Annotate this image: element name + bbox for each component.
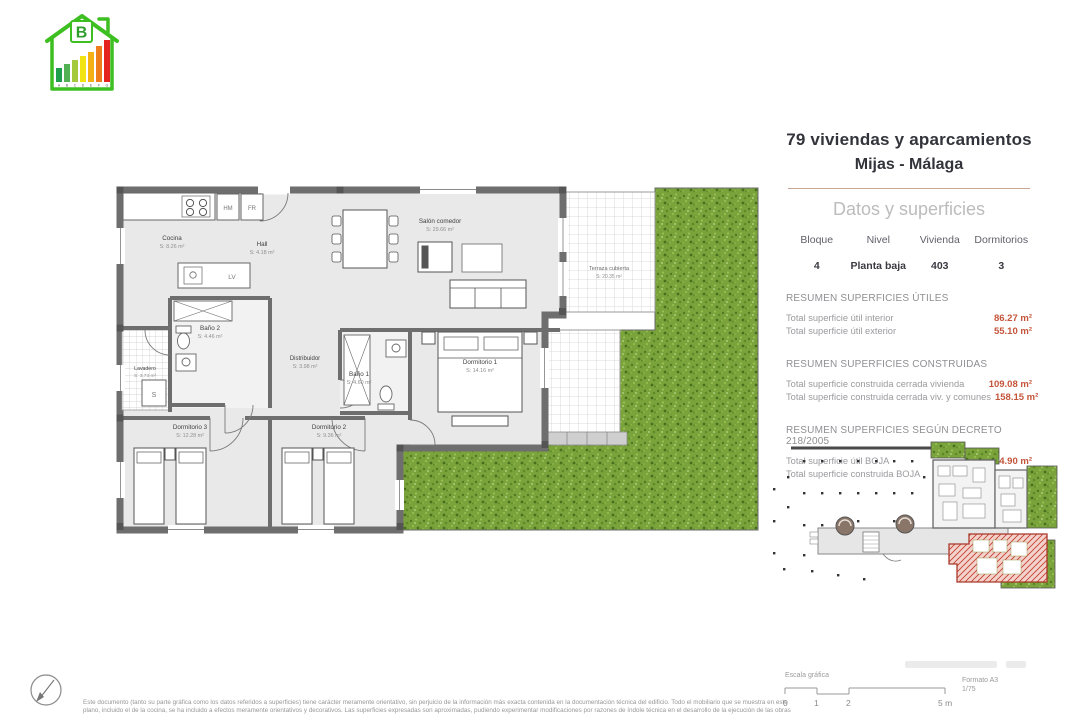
room-label-bano1: Baño 1 xyxy=(349,371,369,378)
bed-double xyxy=(422,332,537,426)
north-arrow-icon xyxy=(24,668,68,712)
energy-scale-letters: A B C D E F G xyxy=(58,84,109,88)
section-title: RESUMEN SUPERFICIES ÚTILES xyxy=(786,293,1032,304)
energy-bars xyxy=(56,40,110,82)
panel-divider xyxy=(788,188,1030,189)
surface-value: 55.10 m² xyxy=(994,325,1032,338)
col-header-dormitorios: Dormitorios xyxy=(971,234,1033,246)
room-area-lavadero: S: 3.73 m² xyxy=(134,373,157,379)
col-header-bloque: Bloque xyxy=(786,234,848,246)
energy-rating-letter: B xyxy=(76,25,88,42)
room-area-bano1: S: 4.60 m² xyxy=(347,380,372,386)
room-area-hall: S: 4.18 m² xyxy=(250,250,275,256)
room-area-bano2: S: 4.46 m² xyxy=(198,334,223,340)
tv-unit xyxy=(418,242,452,272)
surface-label: Total superficie útil interior xyxy=(786,312,893,325)
disclaimer-text: Este documento (tanto su parte gráfica c… xyxy=(83,699,1058,715)
surface-row: Total superficie construida cerrada viv.… xyxy=(786,391,1032,404)
room-label-hall: Hall xyxy=(257,241,268,248)
room-label-distribuidor: Distribuidor xyxy=(290,356,320,362)
col-value-bloque: 4 xyxy=(786,260,848,272)
room-area-dorm1: S: 14.16 m² xyxy=(466,368,494,374)
room-label-cocina: Cocina xyxy=(162,235,182,242)
section-title: RESUMEN SUPERFICIES CONSTRUIDAS xyxy=(786,359,1032,370)
room-label-lavadero: Lavadero xyxy=(134,366,156,372)
watermark-logo-small xyxy=(1006,661,1026,668)
surface-label: Total superficie construida cerrada viv.… xyxy=(786,391,991,404)
svg-text:B: B xyxy=(66,84,69,88)
section-superficies-construidas: RESUMEN SUPERFICIES CONSTRUIDAS Total su… xyxy=(786,359,1032,404)
surface-label: Total superficie construida cerrada vivi… xyxy=(786,378,964,391)
disclaimer-line-2: plano, incluido el de la cocina, se ha i… xyxy=(83,707,1058,715)
apartment-floor-plan: HM FR LV xyxy=(110,180,770,540)
terrace-steps xyxy=(547,432,627,445)
room-area-distribuidor: S: 3.98 m² xyxy=(293,364,318,370)
room-area-terraza: S: 20.35 m² xyxy=(596,274,622,280)
svg-text:D: D xyxy=(82,84,85,88)
unit-info-table: Bloque 4 Nivel Planta baja Vivienda 403 … xyxy=(786,234,1032,272)
room-area-dorm3: S: 12.28 m² xyxy=(176,433,204,439)
surface-label: Total superficie útil exterior xyxy=(786,325,896,338)
watermark-logo xyxy=(905,661,997,668)
terrace-covered xyxy=(563,192,655,312)
surface-row: Total superficie útil exterior 55.10 m² xyxy=(786,325,1032,338)
dryer-label: S xyxy=(152,392,157,399)
col-value-nivel: Planta baja xyxy=(848,260,910,272)
format-scale: 1/75 xyxy=(962,685,998,694)
info-panel: 79 viviendas y aparcamientos Mijas - Mál… xyxy=(786,130,1032,481)
laundry-appliance: S xyxy=(142,380,166,406)
room-area-cocina: S: 8.26 m² xyxy=(160,244,185,250)
svg-text:C: C xyxy=(74,84,77,88)
svg-text:A: A xyxy=(58,84,61,88)
room-label-dorm1: Dormitorio 1 xyxy=(463,359,498,366)
section-superficies-utiles: RESUMEN SUPERFICIES ÚTILES Total superfi… xyxy=(786,293,1032,338)
svg-text:E: E xyxy=(90,84,93,88)
room-label-dorm3: Dormitorio 3 xyxy=(173,424,208,431)
panel-subtitle: Datos y superficies xyxy=(786,199,1032,220)
room-label-dorm2: Dormitorio 2 xyxy=(312,424,347,431)
format-size: Formato A3 xyxy=(962,676,998,685)
scale-label: Escala gráfica xyxy=(785,672,829,679)
col-value-dormitorios: 3 xyxy=(971,260,1033,272)
scale-bar xyxy=(785,688,945,694)
col-value-vivienda: 403 xyxy=(909,260,971,272)
surface-value: 86.27 m² xyxy=(994,312,1032,325)
sofa xyxy=(450,280,526,308)
room-area-dorm2: S: 9.36 m² xyxy=(317,433,342,439)
svg-text:F: F xyxy=(98,84,100,88)
col-header-vivienda: Vivienda xyxy=(909,234,971,246)
fridge-cabinet-label: FR xyxy=(248,206,257,212)
floor-plan-sheet: B A B C D E F G xyxy=(0,0,1080,720)
keyplan-building-a xyxy=(933,460,995,528)
room-label-salon: Salón comedor xyxy=(419,218,461,225)
surface-row: Total superficie construida cerrada vivi… xyxy=(786,378,1032,391)
project-location: Mijas - Málaga xyxy=(786,156,1032,174)
dishwasher-label: LV xyxy=(228,274,236,281)
surface-row: Total superficie útil interior 86.27 m² xyxy=(786,312,1032,325)
svg-text:G: G xyxy=(106,84,109,88)
room-label-terraza: Terraza cubierta xyxy=(589,266,630,272)
keyplan-building-b xyxy=(995,470,1027,528)
project-title: 79 viviendas y aparcamientos xyxy=(786,130,1032,150)
room-label-bano2: Baño 2 xyxy=(200,325,220,332)
terrace-side xyxy=(545,330,620,445)
coffee-table xyxy=(462,244,502,272)
energy-efficiency-logo: B A B C D E F G xyxy=(42,6,122,96)
surface-value: 109.08 m² xyxy=(989,378,1032,391)
format-note: Formato A3 1/75 xyxy=(962,676,998,694)
surface-value: 158.15 m² xyxy=(995,391,1038,404)
site-key-plan xyxy=(763,436,1070,602)
disclaimer-line-1: Este documento (tanto su parte gráfica c… xyxy=(83,699,1058,707)
col-header-nivel: Nivel xyxy=(848,234,910,246)
room-area-salon: S: 29.66 m² xyxy=(426,227,454,233)
oven-cabinet-label: HM xyxy=(223,206,232,212)
